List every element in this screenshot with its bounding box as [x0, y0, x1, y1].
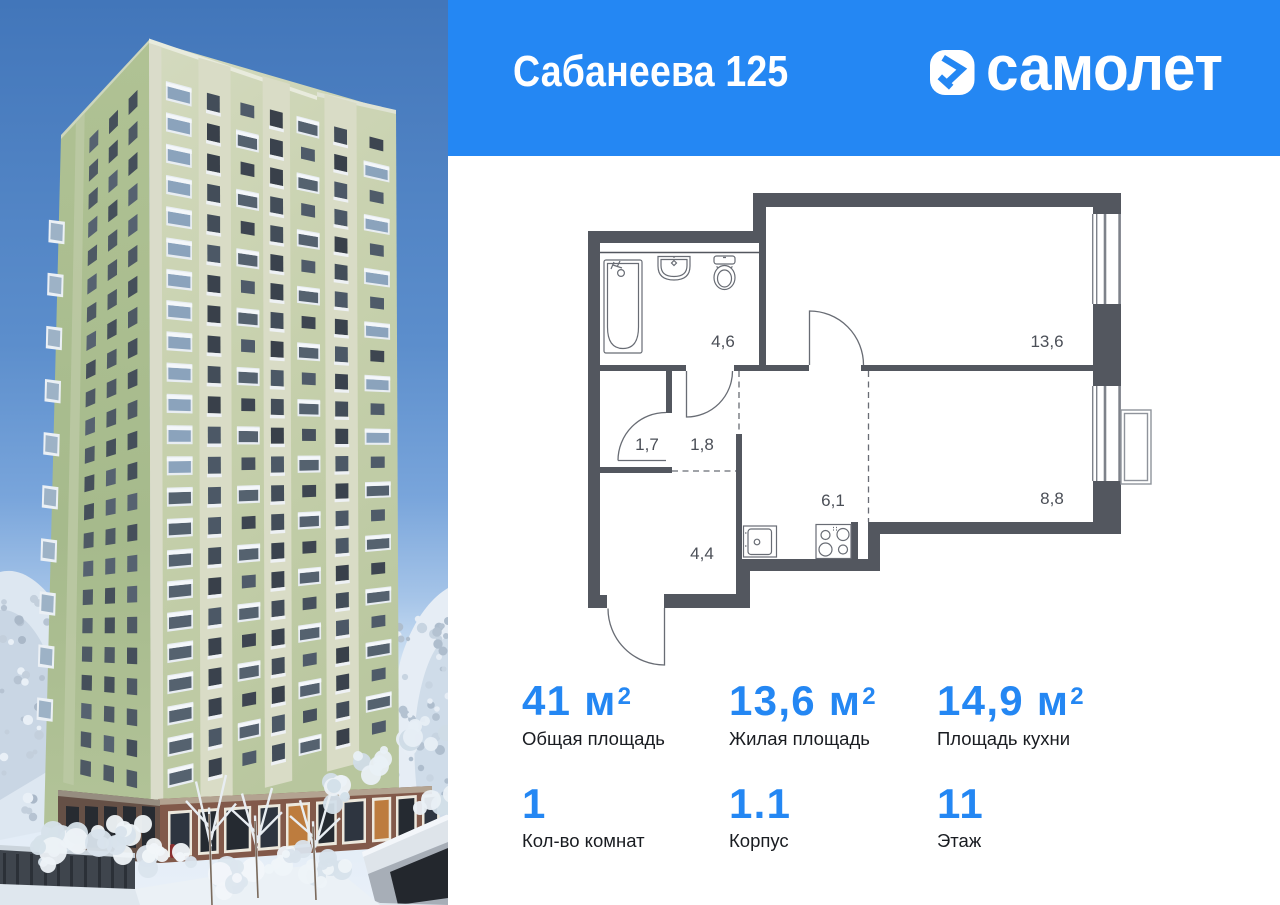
svg-text:1,7: 1,7	[635, 435, 659, 454]
svg-text:6,1: 6,1	[821, 491, 845, 510]
svg-text:8,8: 8,8	[1040, 489, 1064, 508]
svg-text:4,6: 4,6	[711, 332, 735, 351]
svg-text:4,4: 4,4	[690, 544, 714, 563]
svg-text:13,6: 13,6	[1030, 332, 1063, 351]
svg-text:1,8: 1,8	[690, 435, 714, 454]
